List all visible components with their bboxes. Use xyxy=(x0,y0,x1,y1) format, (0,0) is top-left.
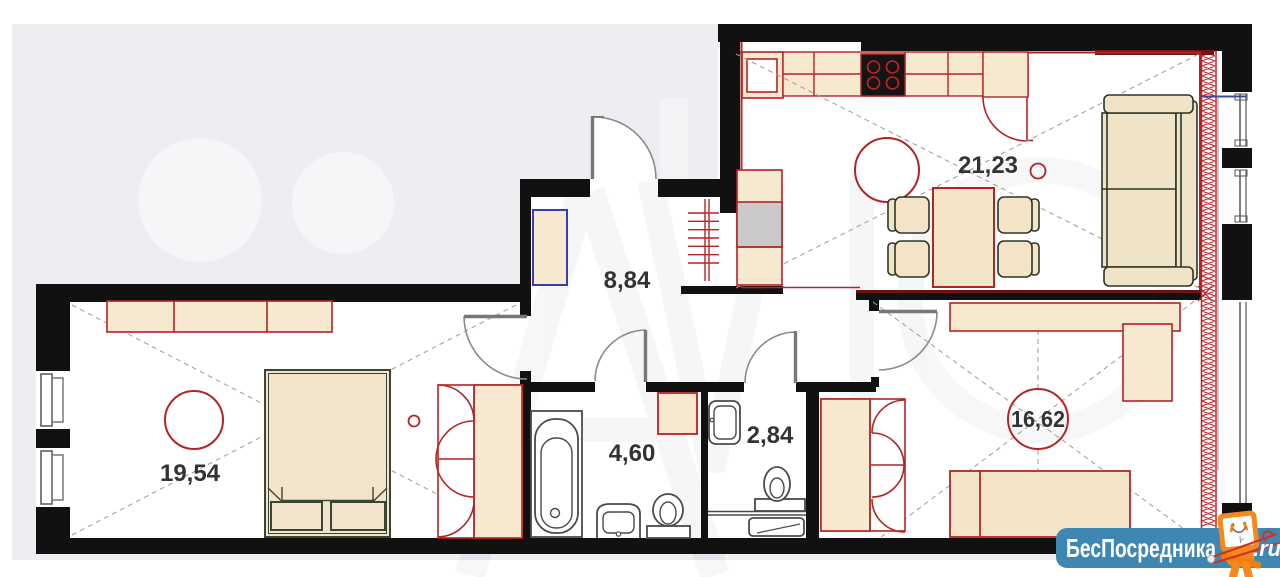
svg-text:БесПосредника: БесПосредника xyxy=(1066,533,1216,563)
svg-text:21,23: 21,23 xyxy=(958,152,1018,179)
svg-text:16,62: 16,62 xyxy=(1011,406,1065,432)
svg-text:.ru: .ru xyxy=(1253,536,1280,561)
svg-text:4,60: 4,60 xyxy=(609,440,656,467)
svg-text:19,54: 19,54 xyxy=(160,460,221,487)
svg-text:8,84: 8,84 xyxy=(604,267,651,294)
svg-text:2,84: 2,84 xyxy=(747,422,794,449)
